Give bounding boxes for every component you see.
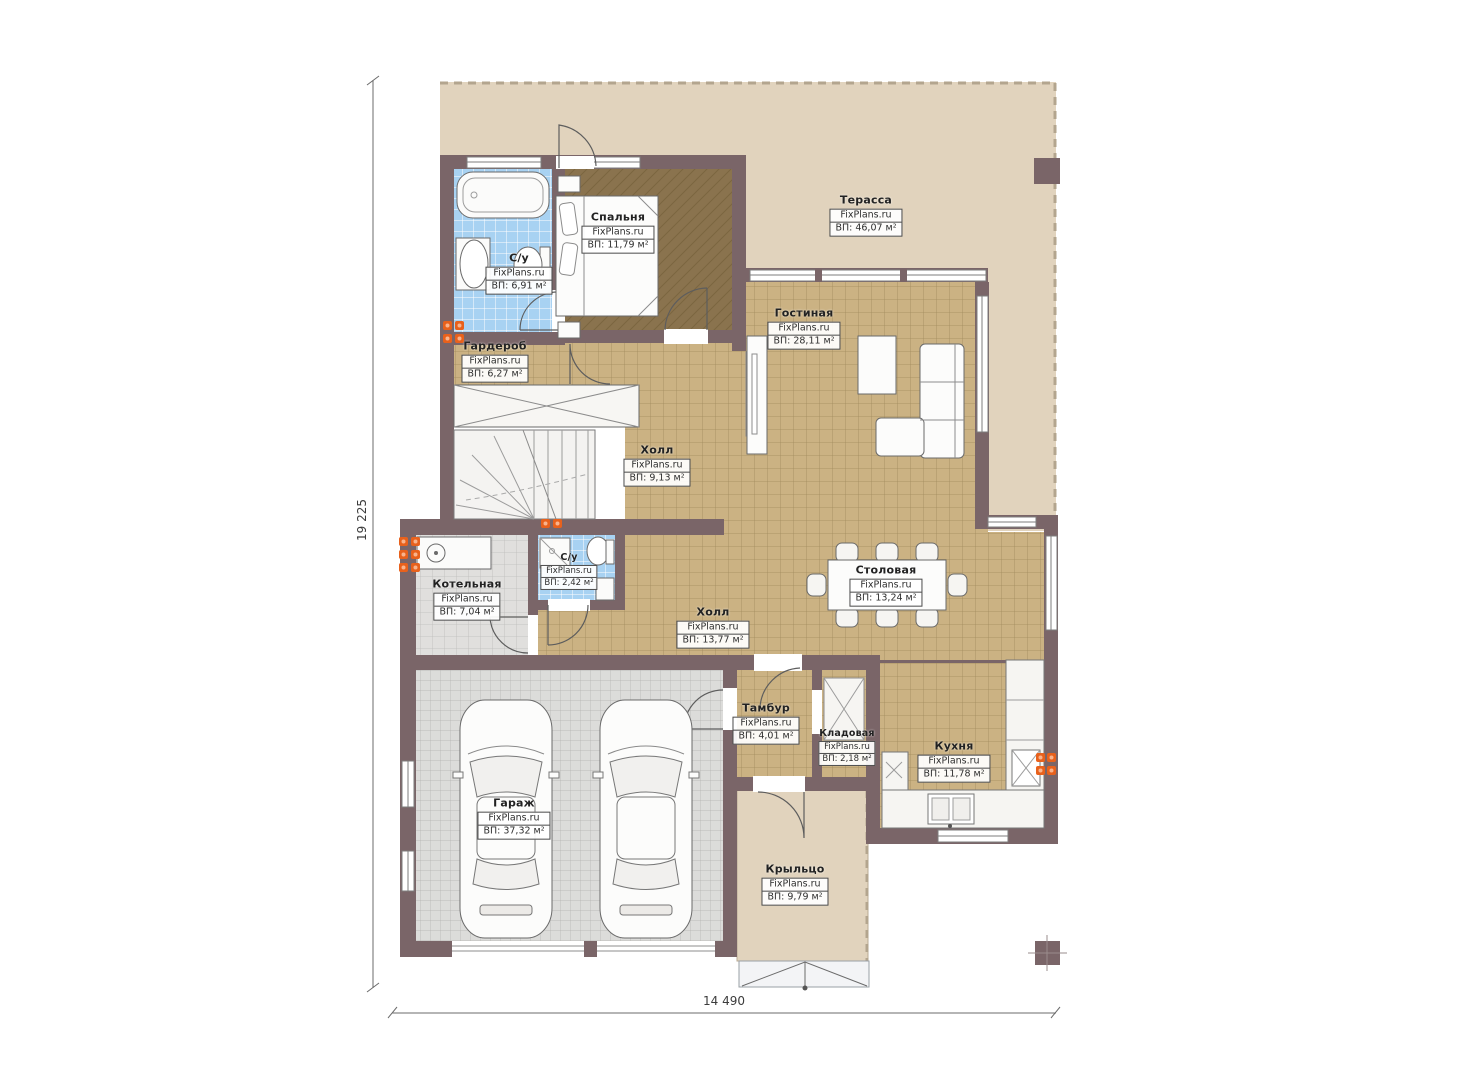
floor-plan-canvas: Терасса FixPlans.ru ВП: 46,07 м² Спальня… <box>0 0 1474 1080</box>
floor-plan-drawing <box>0 0 1474 1080</box>
bathroom-sink <box>456 238 490 290</box>
dimension-width: 14 490 <box>703 994 745 1008</box>
boiler-washer <box>417 537 491 569</box>
wardrobe-closet <box>454 385 639 427</box>
pantry-shelves <box>824 678 864 740</box>
tv-unit <box>747 336 767 454</box>
car-2 <box>593 700 699 938</box>
bed <box>556 176 658 338</box>
toilet <box>514 247 550 283</box>
staircase <box>454 430 595 519</box>
porch-floor <box>737 790 869 991</box>
coffee-table <box>858 336 896 394</box>
dimension-height: 19 225 <box>355 499 369 541</box>
bathtub <box>457 172 549 218</box>
car-1 <box>453 700 559 938</box>
shower-tray <box>540 538 570 568</box>
